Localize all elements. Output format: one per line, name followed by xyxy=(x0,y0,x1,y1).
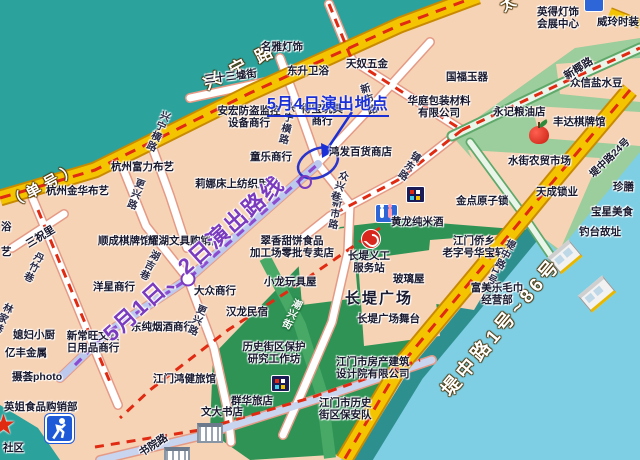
poi-label: 金点原子锁 xyxy=(456,195,509,207)
poi-label: 顺成棋牌馆 xyxy=(98,235,151,247)
poi-label: 玻璃屋 xyxy=(393,273,425,285)
poi-label: 杭州富力布艺 xyxy=(111,161,174,173)
poi-label: 摄荟photo xyxy=(12,371,62,383)
poi-label: 天成锁业 xyxy=(536,186,578,198)
poi-label: 童乐商行 xyxy=(250,151,292,163)
poi-label: 宝星美食 xyxy=(591,206,633,218)
poi-label: 江门市历史 街区保安队 xyxy=(319,397,372,422)
poi-label: 珍膳 xyxy=(613,181,634,193)
poi-label: 浴 xyxy=(1,221,12,233)
poi-label: 长堤义工 服务站 xyxy=(344,250,394,275)
poi-label: 杭州金华布艺 xyxy=(46,185,109,197)
poi-label: 汉龙民宿 xyxy=(226,306,268,318)
poi-label: 小龙玩具屋 xyxy=(264,276,317,288)
poi-label: 黄龙纯米酒 xyxy=(391,216,444,228)
poi-label: 名雅灯饰 xyxy=(261,41,303,53)
poi-label: 社区 xyxy=(3,442,24,454)
poi-label: 威玲时装 xyxy=(597,16,639,28)
poi-label: 丰达棋牌馆 xyxy=(553,116,606,128)
arcade-icon xyxy=(406,186,425,203)
poi-label: 华庭包装材料 有限公司 xyxy=(399,95,479,120)
poi-label: 江门市房产建筑 设计院有限公司 xyxy=(336,356,410,381)
poi-label: 文大书店 xyxy=(201,406,243,418)
poi-label: 媳妇小厨 xyxy=(13,329,55,341)
poi-label: 亿丰金属 xyxy=(5,347,47,359)
poi-label: 大众商行 xyxy=(194,285,236,297)
poi-label: 长堤广场 xyxy=(345,290,413,308)
poi-label: 众信盐水豆 xyxy=(570,77,623,89)
poi-label: 英姐食品购销部 xyxy=(4,401,78,413)
poi-label: 水街农贸市场 xyxy=(508,155,571,167)
poi-label: 国福玉器 xyxy=(446,71,488,83)
volunteer-icon xyxy=(361,229,381,249)
poi-label: 钓台故址 xyxy=(579,226,621,238)
street-map: 名雅灯饰 东升卫浴 天奴五金 英得灯饰 会展中心 威玲时装 国福玉器 安宏防盗监… xyxy=(0,0,640,460)
poi-label: 英得灯饰 会展中心 xyxy=(527,6,589,31)
gate-icon xyxy=(197,423,223,443)
poi-label: 东升卫浴 xyxy=(287,65,329,77)
poi-label: 永记粮油店 xyxy=(493,106,546,118)
poi-label: 洋星商行 xyxy=(93,281,135,293)
poi-label: 鸿发百货商店 xyxy=(329,146,392,158)
poi-label: 长堤广场舞台 xyxy=(357,313,420,325)
poi-label: 历史街区保护 研究工作坊 xyxy=(235,341,313,366)
poi-label: 艺 xyxy=(1,246,12,258)
poi-label: 天奴五金 xyxy=(346,58,388,70)
poi-label: 翠香甜饼食品 加工场零批专卖店 xyxy=(238,235,346,260)
gate-icon xyxy=(164,447,190,460)
may4-location-annotation: 5月4日演出地点 xyxy=(267,90,389,117)
runner-icon xyxy=(45,414,74,443)
apple-icon xyxy=(529,126,549,144)
arcade-icon xyxy=(271,375,290,392)
poi-label: 江门鸿健旅馆 xyxy=(153,373,216,385)
poi-label: 富美乐毛巾 经营部 xyxy=(464,282,530,307)
